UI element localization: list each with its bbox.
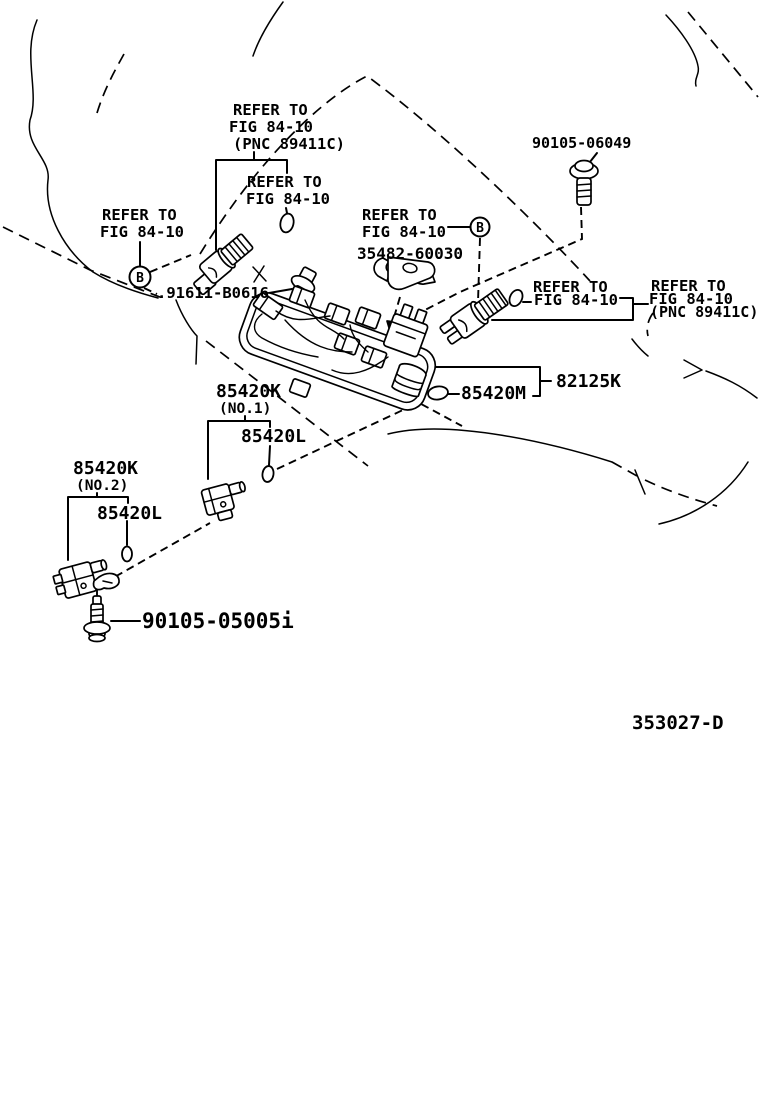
speed-sensor-drawing [438,286,510,347]
callout-b-right-dash [478,238,480,302]
lower-right-dashed-arc [645,480,717,506]
label-refer-top-line1: REFER TO [233,101,308,119]
bolt-90105-05005-drawing [84,596,110,642]
callout-b-letter: B [136,271,144,286]
figure-code: 353027-D [632,712,724,734]
label-part-82125k: 82125K [556,371,621,392]
label-refer-mid-line2: FIG 84-10 [246,190,330,208]
label-refer-top-line2: FIG 84-10 [229,118,313,136]
label-part-91611-b0616: .91611-B0616 [157,284,269,302]
right-small-arc [632,339,648,356]
callout-b-right: B [471,218,490,237]
right-break-mark [684,360,702,378]
label-part-85420k-no2: 85420K [73,458,138,479]
parts-diagram: B B REFER TO FIG 84-10 (PNC 89411C) REFE… [0,0,760,1112]
refer-mid-oring-leader [286,208,287,213]
top-right-body-line [666,15,698,86]
oring-refer-right [507,288,525,308]
cross-mark [253,266,266,282]
oring-85420m [427,385,449,401]
sensor-no1-drawing [201,479,252,523]
right-body-arc [706,371,757,398]
sensor2-to-sensor1-dash [104,523,210,583]
label-refer-mid-line1: REFER TO [247,173,322,191]
oring-refer-mid [279,212,296,233]
label-refer-b-line2: FIG 84-10 [362,223,446,241]
label-part-90105-06049: 90105-06049 [532,134,631,152]
callout-b-left: B [130,267,151,288]
oring-85420l-no2 [122,547,132,562]
label-part-85420l-no2: 85420L [97,503,162,524]
labels: REFER TO FIG 84-10 (PNC 89411C) REFER TO… [73,101,758,734]
sensor-no2-drawing [52,557,119,600]
callout-b-letter: B [476,221,484,236]
oring-85420l-no1 [261,465,274,482]
label-part-35482-60030: 35482-60030 [357,244,463,263]
parts-diagram-page: B B REFER TO FIG 84-10 (PNC 89411C) REFE… [0,0,760,1112]
label-part-85420k-no1: 85420K [216,381,281,402]
label-refer-left-line2: FIG 84-10 [100,223,184,241]
lower-body-dashed [612,462,637,476]
callout-b-left-dash [150,255,191,272]
fender-line [29,20,158,298]
bolt-90105-06049-drawing [570,161,598,206]
a-pillar-dashed-line [97,54,124,113]
label-refer-farright-line3: (PNC 89411C) [650,303,758,321]
label-part-85420m: 85420M [461,383,526,404]
label-refer-right-line2: FIG 84-10 [534,291,618,309]
label-refer-top-line3: (PNC 89411C) [233,135,345,153]
lower-body-curve [388,429,612,462]
oring-l1-leader [269,446,270,465]
label-refer-b-line1: REFER TO [362,206,437,224]
lower-body-tick [635,470,645,494]
label-refer-left-line1: REFER TO [102,206,177,224]
callout-b-label-dash [144,288,157,294]
top-right-dashed-line [688,12,758,97]
label-part-85420l-no1: 85420L [241,426,306,447]
engine-corner-line [176,300,197,364]
lower-right-arc [659,462,748,524]
union-bolt-leader [269,289,292,293]
harness-foot-tab [289,378,311,397]
label-part-90105-05005: 90105-05005i [142,609,294,633]
top-center-body-line [253,2,283,56]
label-part-85420k-no1-sub: (NO.1) [219,401,271,417]
label-part-85420k-no2-sub: (NO.2) [76,478,128,494]
